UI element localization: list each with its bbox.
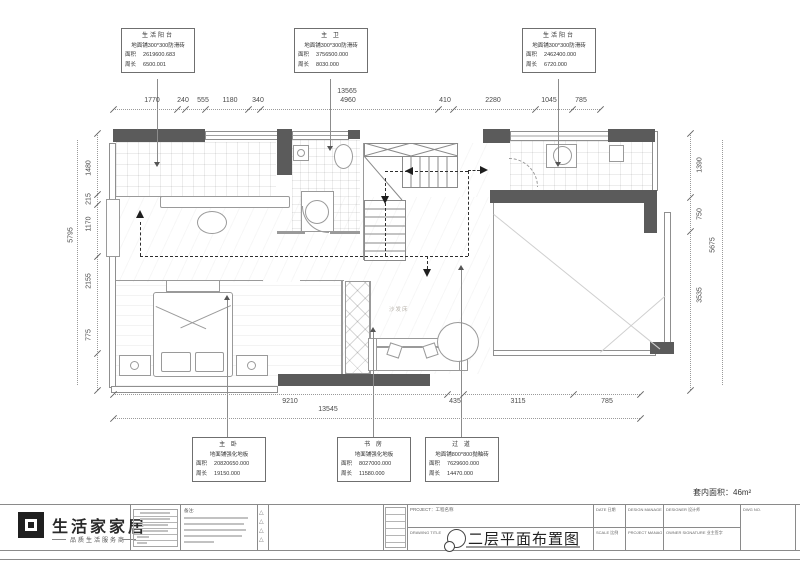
row-line xyxy=(134,516,177,517)
dim-line-right-total xyxy=(722,140,723,385)
dim-label: 1390 xyxy=(697,157,704,173)
room-name: 主 卧 xyxy=(196,440,262,451)
room-floor: 地面铺300*300防滑砖 xyxy=(298,42,364,52)
revision-table xyxy=(385,507,406,548)
fine-print xyxy=(140,512,170,514)
dim-label: 435 xyxy=(449,398,461,405)
dim-label: 555 xyxy=(197,97,209,104)
dim-label: 1180 xyxy=(222,97,237,104)
room-name: 主 卫 xyxy=(298,31,364,42)
logo-core-square xyxy=(28,522,34,528)
area-label: 面积 xyxy=(526,51,537,61)
row-line xyxy=(386,521,405,522)
dim-label: 240 xyxy=(177,97,189,104)
perimeter-label: 周长 xyxy=(196,470,207,480)
revision-triangle: △ xyxy=(259,537,264,543)
room-floor: 地面铺800*800抛釉砖 xyxy=(429,451,495,461)
title-block: 套内面积：46m² 生活家家居 品质生活服务商 xyxy=(0,480,800,566)
notes-line xyxy=(184,529,246,531)
perimeter-label: 周长 xyxy=(298,61,309,71)
divider xyxy=(383,504,384,550)
fine-print xyxy=(137,542,147,544)
room-floor: 地面铺300*300防滑砖 xyxy=(125,42,191,52)
area-label: 面积 xyxy=(125,51,136,61)
field-date: DATE 日期 xyxy=(596,507,624,513)
room-name: 书 房 xyxy=(341,440,407,451)
title-block-outer-line xyxy=(0,559,800,560)
drawing-title-underline xyxy=(466,546,580,548)
row-line xyxy=(386,542,405,543)
title-block-bottom-line xyxy=(0,550,800,551)
unit-area-note: 套内面积：46m² xyxy=(693,487,751,498)
dim-left-total: 5795 xyxy=(68,227,75,243)
fine-print xyxy=(142,524,168,526)
dim-label: 1480 xyxy=(86,160,93,176)
dim-label: 4960 xyxy=(340,97,356,104)
dim-label: 1045 xyxy=(541,97,557,104)
fine-print xyxy=(140,518,170,520)
dim-label: 785 xyxy=(575,97,587,104)
title-block-top-line xyxy=(0,504,800,505)
tick xyxy=(687,387,694,394)
dim-label: 9210 xyxy=(282,398,298,405)
row-line xyxy=(134,528,177,529)
callout-master-bedroom: 主 卧 地面铺强化地板 面积20820650.000 周长19150.000 xyxy=(192,437,266,482)
perimeter-value: 6720.000 xyxy=(544,61,567,71)
dim-top-total: 13565 xyxy=(337,88,356,95)
dim-label: 410 xyxy=(439,97,451,104)
dim-label: 340 xyxy=(252,97,264,104)
dim-label: 775 xyxy=(86,329,93,341)
field-scale: SCALE 比例 xyxy=(596,530,624,536)
divider xyxy=(180,504,181,550)
dim-line-right xyxy=(690,133,691,390)
dim-label: 750 xyxy=(697,208,704,220)
notes-line xyxy=(184,517,248,519)
area-value: 2462400.000 xyxy=(544,51,576,61)
notes-line xyxy=(184,523,244,525)
notes-label: 备注: xyxy=(184,508,194,514)
dim-label: 215 xyxy=(86,193,93,205)
brand-tagline: 品质生活服务商 xyxy=(70,535,126,544)
area-label: 面积 xyxy=(341,460,352,470)
brand-logo-icon xyxy=(18,512,44,538)
dim-label: 2155 xyxy=(86,273,93,289)
perimeter-label: 周长 xyxy=(526,61,537,71)
row-line xyxy=(134,540,177,541)
perimeter-value: 11580.000 xyxy=(359,470,385,480)
tick xyxy=(637,415,644,422)
dim-line-bottom-1 xyxy=(113,394,640,395)
row-line xyxy=(134,534,177,535)
project-label: PROJECT：工程名称 xyxy=(410,507,454,513)
divider xyxy=(795,504,796,550)
perimeter-label: 周长 xyxy=(429,470,440,480)
dim-label: 3115 xyxy=(510,398,525,405)
callout-master-bath: 主 卫 地面铺300*300防滑砖 面积3756500.000 周长8030.0… xyxy=(294,28,368,73)
perimeter-value: 6500.001 xyxy=(143,61,166,71)
area-value: 2619600.683 xyxy=(143,51,175,61)
callout-study: 书 房 地面铺强化地板 面积8027000.000 周长11580.000 xyxy=(337,437,411,482)
notes-block: 备注: xyxy=(184,508,254,548)
floor-plan-page: 沙发床 13565 1770 240 555 1180 340 4960 410… xyxy=(0,0,800,566)
area-value: 7629600.000 xyxy=(447,460,479,470)
area-label: 面积 xyxy=(429,460,440,470)
dim-label: 2280 xyxy=(485,97,501,104)
row-line xyxy=(386,535,405,536)
drawing-label: DRAWING TITLE xyxy=(410,530,441,535)
tick xyxy=(94,387,101,394)
dimension-annotations: 13565 1770 240 555 1180 340 4960 410 228… xyxy=(0,0,800,480)
perimeter-label: 周长 xyxy=(341,470,352,480)
perimeter-value: 8030.000 xyxy=(316,61,339,71)
dim-label: 1770 xyxy=(144,97,160,104)
room-floor: 地面铺强化地板 xyxy=(196,451,262,461)
room-name: 过 道 xyxy=(429,440,495,451)
dim-bottom-total: 13545 xyxy=(318,406,337,413)
perimeter-value: 14470.000 xyxy=(447,470,473,480)
dim-right-total: 5675 xyxy=(710,237,717,253)
company-info-table xyxy=(133,509,178,547)
dim-label: 1170 xyxy=(86,216,93,231)
notes-line xyxy=(184,535,242,537)
notes-line xyxy=(184,541,214,543)
room-name: 生活阳台 xyxy=(125,31,191,42)
field-project-manager: PROJECT MANAGER 项目经理 xyxy=(628,530,662,536)
perimeter-value: 19150.000 xyxy=(214,470,240,480)
room-floor: 地面铺强化地板 xyxy=(341,451,407,461)
callout-corridor: 过 道 地面铺800*800抛釉砖 面积7629600.000 周长14470.… xyxy=(425,437,499,482)
brand-tagline-dash-left xyxy=(52,539,66,540)
row-line xyxy=(386,514,405,515)
revision-triangle: △ xyxy=(259,528,264,534)
divider xyxy=(740,504,741,550)
tick xyxy=(637,391,644,398)
callout-balcony-left: 生活阳台 地面铺300*300防滑砖 面积2619600.683 周长6500.… xyxy=(121,28,195,73)
divider xyxy=(268,504,269,550)
revision-triangle: △ xyxy=(259,519,264,525)
row-line xyxy=(134,522,177,523)
area-label: 面积 xyxy=(196,460,207,470)
perimeter-label: 周长 xyxy=(125,61,136,71)
field-designer: DESIGNER 设计师 xyxy=(666,507,738,513)
area-value: 20820650.000 xyxy=(214,460,249,470)
area-value: 3756500.000 xyxy=(316,51,348,61)
field-dwg-no: DWG NO. xyxy=(743,507,793,512)
callout-balcony-right: 生活阳台 地面铺300*300防滑砖 面积2462400.000 周长6720.… xyxy=(522,28,596,73)
room-floor: 地面铺300*300防滑砖 xyxy=(526,42,592,52)
dim-label: 785 xyxy=(601,398,613,405)
dim-line-bottom-2 xyxy=(113,418,640,419)
room-name: 生活阳台 xyxy=(526,31,592,42)
dim-line-left-total xyxy=(77,140,78,385)
area-label: 面积 xyxy=(298,51,309,61)
tick xyxy=(597,106,604,113)
field-owner-signature: OWNER SIGNATURE 业主签字 xyxy=(666,530,738,536)
fine-print xyxy=(137,536,149,538)
area-value: 8027000.000 xyxy=(359,460,391,470)
row-line xyxy=(386,528,405,529)
field-design-manager: DESIGN MANAGER 设计经理 xyxy=(628,507,662,513)
revision-triangle: △ xyxy=(259,510,264,516)
drawing-title-symbol-small xyxy=(444,541,455,552)
dim-label: 3535 xyxy=(697,287,704,303)
divider xyxy=(257,504,258,550)
fine-print xyxy=(142,530,168,532)
